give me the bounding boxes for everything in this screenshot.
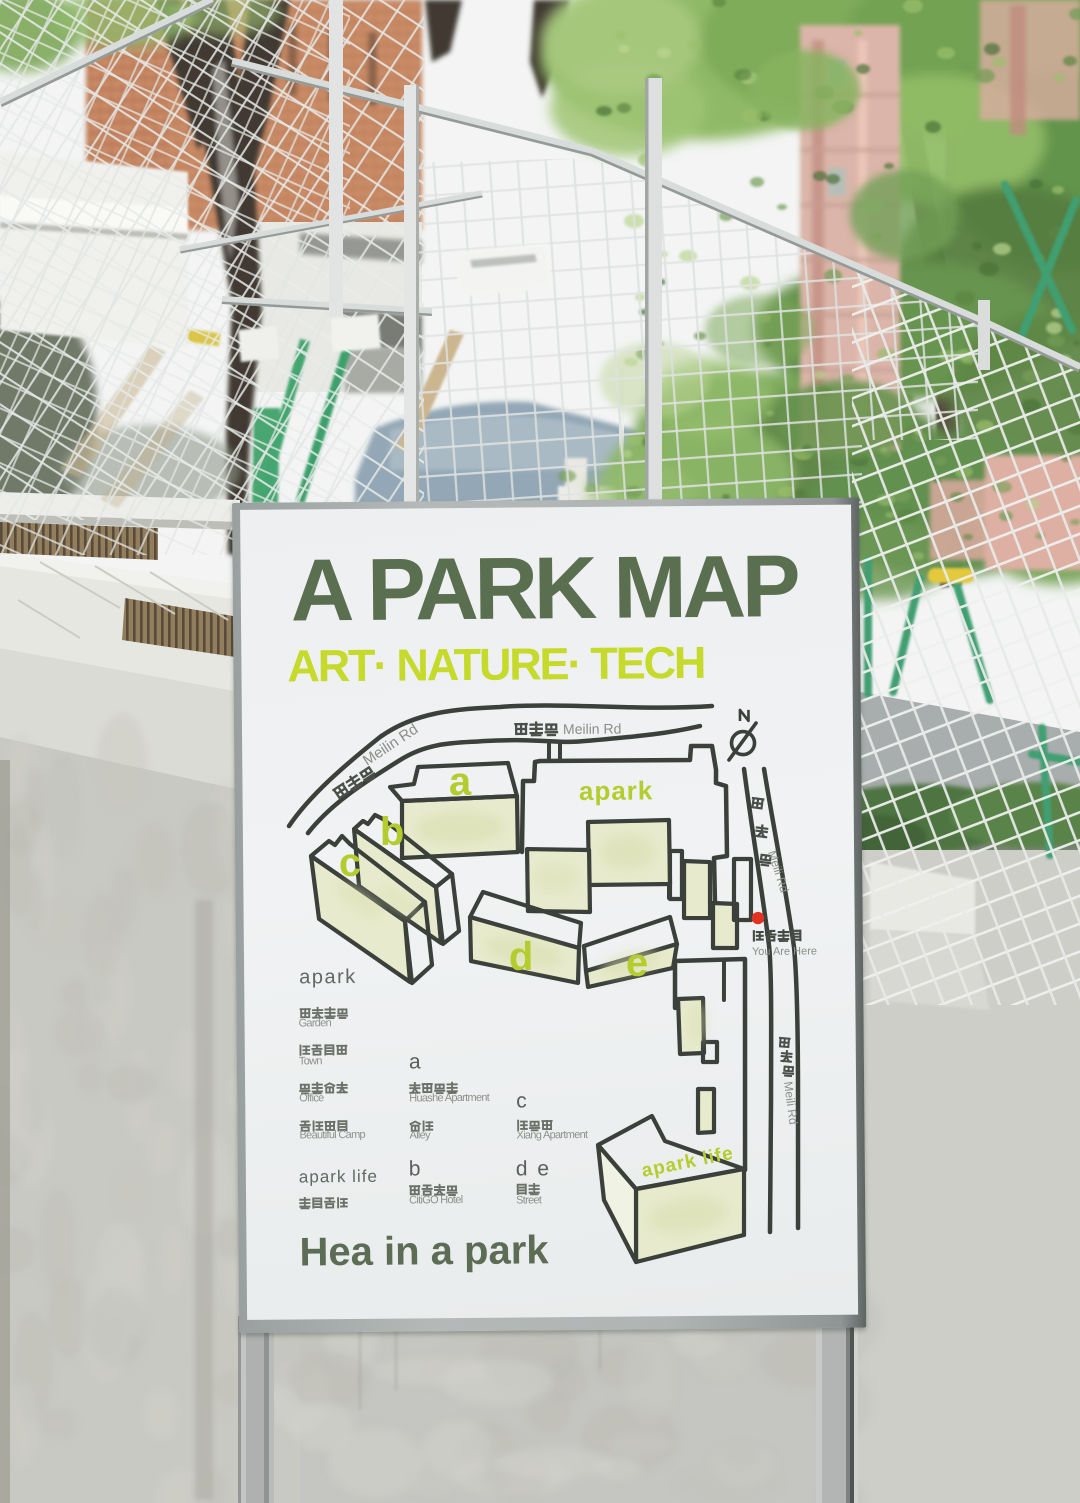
svg-text:b: b — [380, 810, 406, 854]
svg-text:Meilin Rd: Meilin Rd — [563, 721, 621, 738]
svg-text:d: d — [509, 935, 535, 979]
svg-text:Meili Rd: Meili Rd — [765, 849, 791, 895]
svg-text:a: a — [449, 760, 473, 804]
svg-text:c: c — [339, 841, 363, 885]
svg-text:apark: apark — [579, 775, 654, 806]
svg-text:You Are Here: You Are Here — [752, 945, 817, 958]
svg-text:e: e — [626, 941, 650, 985]
